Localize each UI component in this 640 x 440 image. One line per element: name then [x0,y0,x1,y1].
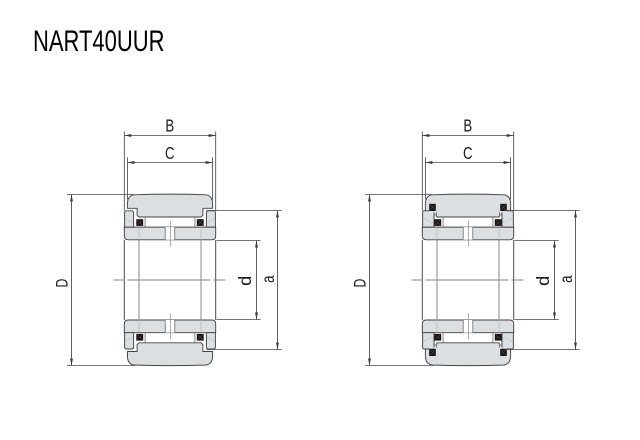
svg-text:a: a [260,275,279,283]
svg-text:D: D [54,279,72,288]
svg-text:d: d [236,276,255,286]
svg-text:D: D [352,279,370,288]
svg-text:a: a [558,275,577,283]
svg-text:C: C [463,144,473,163]
svg-text:B: B [463,117,472,136]
svg-text:d: d [534,276,553,286]
svg-text:C: C [165,144,175,163]
svg-text:B: B [165,117,174,136]
